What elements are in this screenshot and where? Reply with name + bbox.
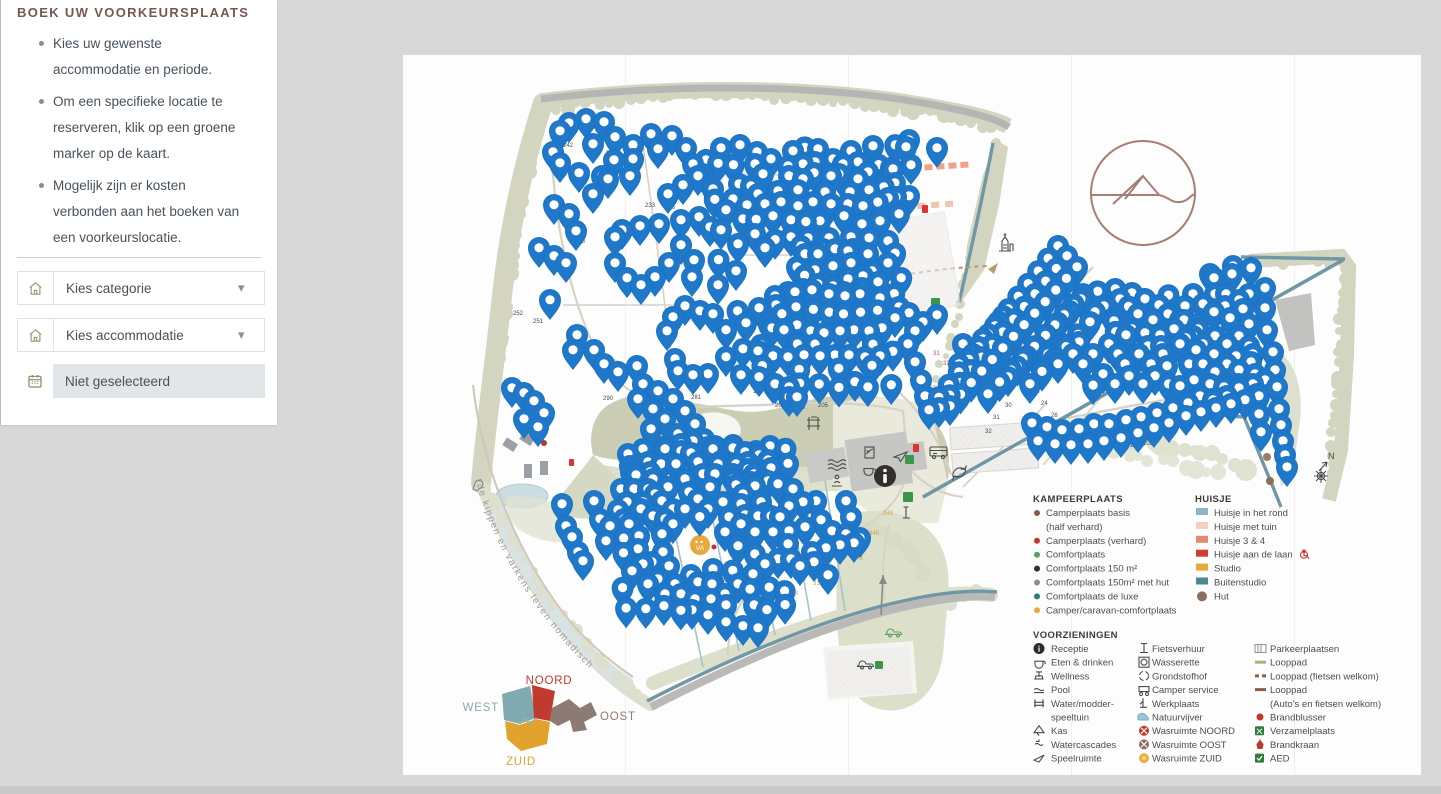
svg-text:ZUID: ZUID (506, 756, 536, 768)
svg-text:Pool: Pool (1051, 685, 1070, 696)
svg-text:WEST: WEST (463, 702, 499, 714)
svg-text:24: 24 (1041, 401, 1048, 407)
svg-text:Wasruimte ZUID: Wasruimte ZUID (1152, 754, 1222, 765)
svg-text:Huisje in het rond: Huisje in het rond (1214, 508, 1288, 519)
svg-text:Comfortplaats 150m² met hut: Comfortplaats 150m² met hut (1046, 578, 1169, 589)
svg-text:Wellness: Wellness (1051, 671, 1090, 682)
svg-text:Water/modder-: Water/modder- (1051, 699, 1114, 710)
svg-text:30: 30 (1005, 403, 1012, 409)
svg-text:Looppad (fietsen welkom): Looppad (fietsen welkom) (1270, 671, 1379, 682)
svg-text:Natuurvijver: Natuurvijver (1152, 713, 1203, 724)
svg-text:Brandblusser: Brandblusser (1270, 713, 1326, 724)
svg-text:speeltuin: speeltuin (1051, 713, 1089, 724)
svg-text:Eten & drinken: Eten & drinken (1051, 658, 1113, 669)
svg-text:Kas: Kas (1051, 726, 1068, 737)
svg-text:251: 251 (533, 319, 544, 325)
svg-text:VOORZIENINGEN: VOORZIENINGEN (1033, 630, 1118, 641)
svg-text:Huisje 3 & 4: Huisje 3 & 4 (1214, 536, 1265, 547)
svg-text:Comfortplaats de luxe: Comfortplaats de luxe (1046, 591, 1138, 602)
svg-text:Grondstofhof: Grondstofhof (1152, 671, 1207, 682)
svg-text:Looppad: Looppad (1270, 685, 1307, 696)
svg-text:Hut: Hut (1214, 591, 1229, 602)
svg-text:Studio: Studio (1214, 564, 1241, 575)
svg-text:Huisje met tuin: Huisje met tuin (1214, 522, 1277, 533)
svg-text:Camperplaats basis: Camperplaats basis (1046, 508, 1130, 519)
svg-text:Buitenstudio: Buitenstudio (1214, 578, 1266, 589)
svg-text:Camper/caravan-comfortplaats: Camper/caravan-comfortplaats (1046, 605, 1177, 616)
svg-text:252: 252 (513, 311, 524, 317)
svg-text:Comfortplaats 150 m²: Comfortplaats 150 m² (1046, 564, 1137, 575)
svg-text:AED: AED (1270, 754, 1290, 765)
svg-text:31: 31 (933, 351, 940, 357)
svg-text:Brandkraan: Brandkraan (1270, 740, 1319, 751)
svg-text:31: 31 (993, 415, 1000, 421)
svg-text:OOST: OOST (600, 711, 636, 723)
svg-text:Wasruimte OOST: Wasruimte OOST (1152, 740, 1227, 751)
svg-text:N: N (1328, 451, 1335, 461)
svg-text:VA: VA (696, 545, 705, 552)
svg-text:Huisje aan de laan: Huisje aan de laan (1214, 550, 1293, 561)
svg-text:Speelruimte: Speelruimte (1051, 754, 1102, 765)
svg-text:Camper service: Camper service (1152, 685, 1219, 696)
svg-text:(half verhard): (half verhard) (1046, 522, 1103, 533)
svg-text:Verzamelplaats: Verzamelplaats (1270, 726, 1335, 737)
svg-text:205: 205 (818, 403, 829, 409)
svg-text:32: 32 (985, 429, 992, 435)
svg-text:348: 348 (883, 511, 894, 517)
svg-text:Fietsverhuur: Fietsverhuur (1152, 644, 1205, 655)
svg-text:HUISJE: HUISJE (1195, 494, 1232, 505)
svg-text:233: 233 (645, 203, 656, 209)
svg-text:Camperplaats (verhard): Camperplaats (verhard) (1046, 536, 1146, 547)
svg-text:Comfortplaats: Comfortplaats (1046, 550, 1105, 561)
svg-text:281: 281 (691, 395, 702, 401)
svg-text:290: 290 (603, 396, 614, 402)
svg-text:Wasruimte NOORD: Wasruimte NOORD (1152, 726, 1235, 737)
svg-text:Wasserette: Wasserette (1152, 658, 1200, 669)
svg-text:Receptie: Receptie (1051, 644, 1089, 655)
svg-text:Looppad: Looppad (1270, 658, 1307, 669)
svg-text:NOORD: NOORD (526, 675, 573, 687)
svg-text:KAMPEERPLAATS: KAMPEERPLAATS (1033, 494, 1123, 505)
svg-text:Watercascades: Watercascades (1051, 740, 1116, 751)
svg-text:(Auto's en fietsen welkom): (Auto's en fietsen welkom) (1270, 699, 1381, 710)
svg-text:Werkplaats: Werkplaats (1152, 699, 1200, 710)
svg-text:Parkeerplaatsen: Parkeerplaatsen (1270, 644, 1339, 655)
